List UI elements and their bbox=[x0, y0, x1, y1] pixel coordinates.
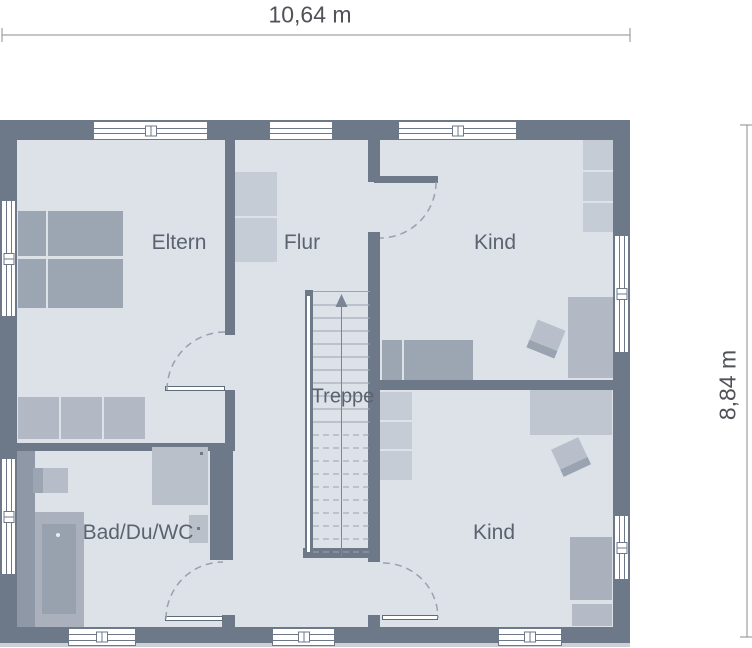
window-handle-symbol bbox=[298, 632, 310, 643]
kind-bottom-wardrobe-2 bbox=[380, 422, 412, 449]
wall-stair-bottom bbox=[303, 548, 378, 558]
window-bottom-bad bbox=[68, 628, 136, 646]
window-right-kind-top bbox=[614, 235, 629, 353]
bad-bathtub-inner bbox=[42, 524, 76, 614]
kind-bottom-wardrobe-1 bbox=[380, 392, 412, 420]
room-label-eltern: Eltern bbox=[152, 231, 207, 255]
wall-stub-kind-bottom-door bbox=[368, 615, 380, 628]
door-leaf-kind-bottom bbox=[382, 615, 438, 620]
room-label-treppe: Treppe bbox=[312, 386, 375, 409]
bad-wc-dot bbox=[197, 527, 200, 530]
kind-top-wardrobe-1 bbox=[583, 140, 613, 170]
room-label-kind-top: Kind bbox=[474, 231, 516, 255]
eltern-bed-mattress-1 bbox=[48, 211, 123, 256]
eltern-bed-pillow-2 bbox=[18, 259, 46, 308]
bad-shower-head bbox=[200, 452, 203, 455]
kind-top-desk bbox=[568, 297, 613, 378]
window-handle-symbol bbox=[96, 632, 108, 643]
room-label-kind-bottom: Kind bbox=[473, 521, 515, 545]
window-bottom-hall bbox=[272, 628, 335, 646]
eltern-wardrobe-3 bbox=[104, 397, 145, 439]
room-label-flur: Flur bbox=[284, 231, 320, 255]
window-right-kind-bottom bbox=[614, 515, 629, 580]
dimension-height-text: 8,84 m bbox=[715, 350, 742, 420]
wall-eltern-flur-lower bbox=[225, 390, 235, 445]
window-bottom-kind bbox=[498, 628, 562, 646]
window-handle-symbol bbox=[452, 125, 464, 136]
flur-wardrobe-2 bbox=[235, 218, 277, 262]
kind-top-wardrobe-3 bbox=[583, 203, 613, 232]
window-top-flur bbox=[269, 121, 333, 140]
stair-railing-line bbox=[307, 296, 310, 552]
bad-shower bbox=[152, 447, 208, 505]
window-top-kind bbox=[398, 121, 517, 140]
wall-eltern-flur-upper bbox=[225, 140, 235, 335]
kind-top-wardrobe-2 bbox=[583, 172, 613, 201]
wall-kind-divider bbox=[378, 380, 613, 390]
room-label-bad: Bad/Du/WC bbox=[83, 521, 194, 545]
kind-bottom-wardrobe-3 bbox=[380, 451, 412, 480]
eltern-wardrobe-2 bbox=[61, 397, 102, 439]
floor-plan-canvas: Eltern Flur Kind Treppe Bad/Du/WC Kind 1… bbox=[0, 0, 752, 648]
door-leaf-bad bbox=[165, 616, 223, 621]
flur-wardrobe-1 bbox=[235, 172, 277, 216]
bad-bathtub-drain bbox=[56, 533, 60, 537]
window-handle-symbol bbox=[3, 511, 14, 523]
kind-top-bed-pillow bbox=[382, 340, 402, 380]
window-line bbox=[270, 128, 332, 129]
door-leaf-eltern bbox=[165, 386, 225, 391]
bad-washbasin-side bbox=[33, 468, 43, 493]
window-left-bad bbox=[1, 458, 16, 575]
kind-bottom-desk bbox=[530, 390, 612, 435]
window-handle-symbol bbox=[145, 125, 157, 136]
window-handle-symbol bbox=[3, 253, 14, 265]
window-handle-symbol bbox=[616, 288, 627, 300]
eltern-bed-pillow-1 bbox=[18, 211, 46, 256]
window-left-eltern bbox=[1, 200, 16, 317]
window-handle-symbol bbox=[524, 632, 536, 643]
kind-top-bed-mattress bbox=[404, 340, 473, 380]
window-top-eltern bbox=[93, 121, 208, 140]
door-leaf-kind-top bbox=[374, 176, 438, 183]
wall-bad-right bbox=[210, 443, 233, 560]
kind-bottom-bed-pillow bbox=[572, 604, 612, 626]
kind-bottom-bed-mattress bbox=[570, 537, 612, 600]
dimension-width-text: 10,64 m bbox=[268, 2, 351, 29]
eltern-bed-mattress-2 bbox=[48, 259, 123, 308]
wall-stub-bad-door bbox=[222, 615, 235, 628]
bad-washbasin bbox=[43, 468, 68, 493]
eltern-wardrobe-1 bbox=[18, 397, 59, 439]
window-handle-symbol bbox=[616, 542, 627, 554]
window-line bbox=[270, 133, 332, 134]
